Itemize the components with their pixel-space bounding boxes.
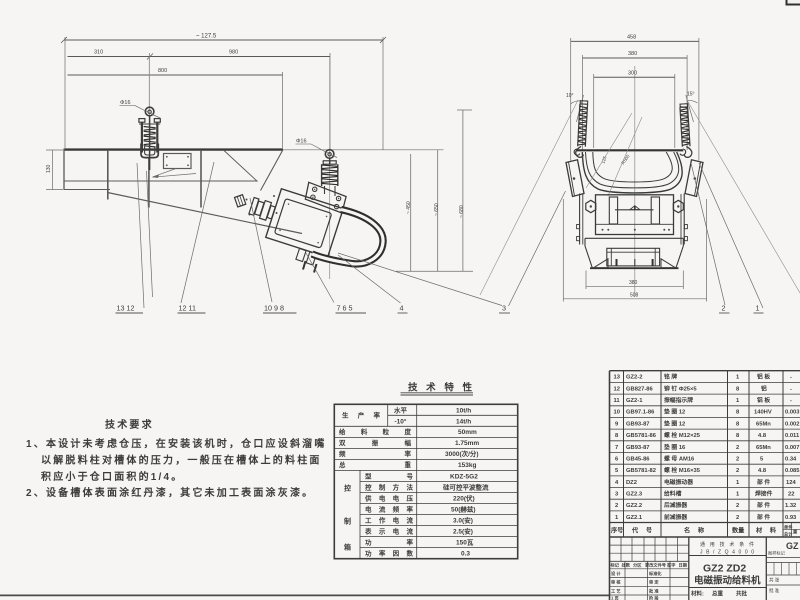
svg-text:~ 650: ~ 650 <box>434 203 440 216</box>
svg-text:GB45-86: GB45-86 <box>626 457 650 463</box>
svg-text:13: 13 <box>614 375 621 381</box>
svg-text:GB97.1-86: GB97.1-86 <box>626 410 655 416</box>
svg-text:-: - <box>790 386 792 392</box>
svg-text:2: 2 <box>736 468 739 474</box>
svg-text:焊接件: 焊接件 <box>755 490 773 498</box>
svg-text:前减振器: 前减振器 <box>664 513 687 521</box>
svg-text:GB5781-82: GB5781-82 <box>626 468 656 474</box>
svg-text:3.0(安): 3.0(安) <box>453 516 473 525</box>
svg-text:GB827-86: GB827-86 <box>626 386 654 392</box>
svg-text:1 页: 1 页 <box>611 595 619 600</box>
svg-text:380: 380 <box>629 280 638 286</box>
svg-text:批 准: 批 准 <box>649 588 659 595</box>
svg-text:458: 458 <box>627 35 636 41</box>
svg-text:2: 2 <box>736 503 739 509</box>
svg-text:共 张: 共 张 <box>769 577 780 584</box>
svg-text:7 6 5: 7 6 5 <box>337 304 353 313</box>
svg-text:65Mn: 65Mn <box>756 445 771 451</box>
svg-text:130: 130 <box>46 164 52 173</box>
svg-text:-10°: -10° <box>395 418 407 426</box>
svg-text:2: 2 <box>722 304 726 313</box>
svg-text:GZ2.3: GZ2.3 <box>626 492 643 498</box>
svg-text:124: 124 <box>786 480 796 486</box>
svg-text:积应小于仓口面积的1/4。: 积应小于仓口面积的1/4。 <box>41 470 184 483</box>
svg-text:处数: 处数 <box>621 562 631 569</box>
svg-text:GZ2-2: GZ2-2 <box>626 375 642 381</box>
svg-text:1.75mm: 1.75mm <box>455 440 479 447</box>
svg-text:材料:: 材料: <box>691 590 704 598</box>
svg-text:0.3: 0.3 <box>461 551 470 558</box>
svg-text:11: 11 <box>614 398 621 404</box>
svg-text:部 件: 部 件 <box>757 501 770 509</box>
svg-text:GZ2.1: GZ2.1 <box>626 515 643 521</box>
svg-text:2: 2 <box>736 457 739 463</box>
svg-text:铝 板: 铝 板 <box>757 396 770 404</box>
svg-text:15°: 15° <box>687 92 695 98</box>
svg-text:220(伏): 220(伏) <box>453 494 475 503</box>
svg-text:标记: 标记 <box>610 562 620 569</box>
svg-text:50mm: 50mm <box>458 429 477 436</box>
svg-text:0.93: 0.93 <box>785 515 797 521</box>
svg-text:生产率: 生产率 <box>342 411 381 420</box>
svg-text:单件: 单件 <box>784 524 793 531</box>
svg-text:10°: 10° <box>566 93 574 99</box>
svg-text:310: 310 <box>94 50 103 56</box>
svg-text:GZ: GZ <box>786 541 799 551</box>
svg-text:GB93-87: GB93-87 <box>626 445 650 451</box>
svg-text:以解脱料柱对槽体的压力，一般压在槽体上的料柱面: 以解脱料柱对槽体的压力，一般压在槽体上的料柱面 <box>41 453 322 466</box>
svg-text:分区: 分区 <box>633 562 642 569</box>
svg-text:~ 680: ~ 680 <box>459 205 465 218</box>
svg-text:审 核: 审 核 <box>611 579 621 586</box>
svg-text:制: 制 <box>344 517 351 526</box>
svg-text:垫 圈 12: 垫 圈 12 <box>664 408 685 416</box>
svg-text:980: 980 <box>229 50 238 56</box>
svg-text:2: 2 <box>736 445 739 451</box>
svg-text:50(赫兹): 50(赫兹) <box>451 505 476 514</box>
svg-text:共批: 共批 <box>736 590 748 598</box>
svg-text:-: - <box>790 398 792 404</box>
svg-text:铝 板: 铝 板 <box>757 373 770 381</box>
svg-text:2: 2 <box>736 515 739 521</box>
svg-text:1.32: 1.32 <box>785 503 796 509</box>
svg-text:1、本设计未考虑仓压，在安装该机时，仓口应设斜溜嘴: 1、本设计未考虑仓压，在安装该机时，仓口应设斜溜嘴 <box>26 437 327 450</box>
svg-text:140HV: 140HV <box>754 410 772 416</box>
svg-text:图样标记: 图样标记 <box>768 550 786 557</box>
svg-text:螺 栓 M12×25: 螺 栓 M12×25 <box>664 431 701 439</box>
svg-text:给料槽: 给料槽 <box>664 490 682 498</box>
svg-text:螺 栓 M16×35: 螺 栓 M16×35 <box>664 466 701 474</box>
svg-text:Φ16: Φ16 <box>296 139 307 145</box>
svg-text:3: 3 <box>502 304 506 313</box>
svg-text:65Mn: 65Mn <box>756 421 771 427</box>
svg-text:后减振器: 后减振器 <box>664 501 687 509</box>
svg-text:部 件: 部 件 <box>757 513 770 521</box>
svg-text:0.002: 0.002 <box>785 421 800 427</box>
svg-text:GZ2 ZD2: GZ2 ZD2 <box>703 563 746 575</box>
svg-text:批 准: 批 准 <box>769 587 780 594</box>
svg-text:4.8: 4.8 <box>758 468 767 474</box>
svg-text:~ 127.5: ~ 127.5 <box>196 34 217 40</box>
svg-text:GZ2-1: GZ2-1 <box>626 398 643 404</box>
svg-text:13 12: 13 12 <box>117 304 135 313</box>
svg-text:~ 450: ~ 450 <box>406 201 412 214</box>
svg-text:10 9 8: 10 9 8 <box>264 304 284 313</box>
svg-text:签字: 签字 <box>666 562 675 569</box>
svg-text:部 件: 部 件 <box>757 478 770 486</box>
svg-text:0.003: 0.003 <box>785 410 800 416</box>
svg-text:0.007: 0.007 <box>785 445 800 451</box>
svg-text:控: 控 <box>344 484 351 493</box>
svg-text:日期: 日期 <box>679 562 687 569</box>
svg-text:DZ2: DZ2 <box>626 480 637 486</box>
svg-text:振幅指示牌: 振幅指示牌 <box>664 396 693 404</box>
svg-text:-: - <box>790 375 792 381</box>
svg-text:0.34: 0.34 <box>785 457 797 463</box>
svg-text:数量: 数量 <box>732 527 745 535</box>
svg-text:300: 300 <box>628 71 637 77</box>
svg-text:垫 圈 16: 垫 圈 16 <box>664 443 686 451</box>
svg-text:380: 380 <box>628 51 637 57</box>
svg-text:10t/h: 10t/h <box>456 408 471 415</box>
svg-text:铭 牌: 铭 牌 <box>664 373 677 381</box>
svg-text:更改文件号: 更改文件号 <box>645 562 666 569</box>
svg-text:508: 508 <box>630 293 639 299</box>
svg-text:水平: 水平 <box>394 406 408 415</box>
svg-text:阶 段: 阶 段 <box>649 595 659 600</box>
svg-text:12 11: 12 11 <box>179 304 196 313</box>
svg-text:4: 4 <box>400 304 404 313</box>
svg-text:GB5781-86: GB5781-86 <box>626 433 657 439</box>
svg-text:GZ2.2: GZ2.2 <box>626 503 642 509</box>
svg-text:2: 2 <box>615 503 618 509</box>
svg-text:工 艺: 工 艺 <box>611 588 621 595</box>
svg-text:序号: 序号 <box>610 527 623 535</box>
svg-text:总计: 总计 <box>784 531 793 538</box>
svg-text:10: 10 <box>614 410 620 416</box>
svg-text:硅可控平波整流: 硅可控平波整流 <box>443 483 489 492</box>
svg-text:箱: 箱 <box>344 543 351 552</box>
svg-text:铝: 铝 <box>761 384 767 392</box>
svg-text:7: 7 <box>615 445 618 451</box>
svg-text:螺 母 AM16: 螺 母 AM16 <box>664 455 695 463</box>
svg-text:KDZ-5G2: KDZ-5G2 <box>450 474 478 481</box>
svg-text:铆 钉 Φ25×5: 铆 钉 Φ25×5 <box>664 384 697 392</box>
svg-text:电磁振动器: 电磁振动器 <box>664 478 693 486</box>
svg-text:0.011: 0.011 <box>785 433 800 439</box>
svg-text:标准化: 标准化 <box>648 570 662 577</box>
svg-text:3000(次/分): 3000(次/分) <box>445 449 479 458</box>
svg-text:设 计: 设 计 <box>611 570 621 577</box>
svg-text:0.085: 0.085 <box>785 468 800 474</box>
svg-text:2、设备槽体表面涂红丹漆，其它未加工表面涂灰漆。: 2、设备槽体表面涂红丹漆，其它未加工表面涂灰漆。 <box>26 486 314 499</box>
svg-text:技术要求: 技术要求 <box>105 418 154 431</box>
svg-text:审 定: 审 定 <box>649 579 659 586</box>
svg-text:1: 1 <box>756 304 760 313</box>
svg-text:22: 22 <box>788 492 794 498</box>
svg-text:800: 800 <box>158 68 167 74</box>
svg-text:12: 12 <box>614 386 620 392</box>
svg-text:153kg: 153kg <box>458 462 476 469</box>
svg-text:总重: 总重 <box>712 590 724 598</box>
svg-text:150瓦: 150瓦 <box>456 539 474 547</box>
svg-text:GB93-87: GB93-87 <box>626 421 650 427</box>
svg-text:垫 圈 12: 垫 圈 12 <box>664 419 685 427</box>
svg-text:2.5(安): 2.5(安) <box>453 527 473 536</box>
svg-text:JB/ZQ4000: JB/ZQ4000 <box>700 550 754 556</box>
svg-text:4.8: 4.8 <box>758 433 767 439</box>
svg-text:14t/h: 14t/h <box>456 419 471 426</box>
svg-text:电磁振动给料机: 电磁振动给料机 <box>694 575 761 587</box>
svg-text:Φ16: Φ16 <box>120 100 131 106</box>
